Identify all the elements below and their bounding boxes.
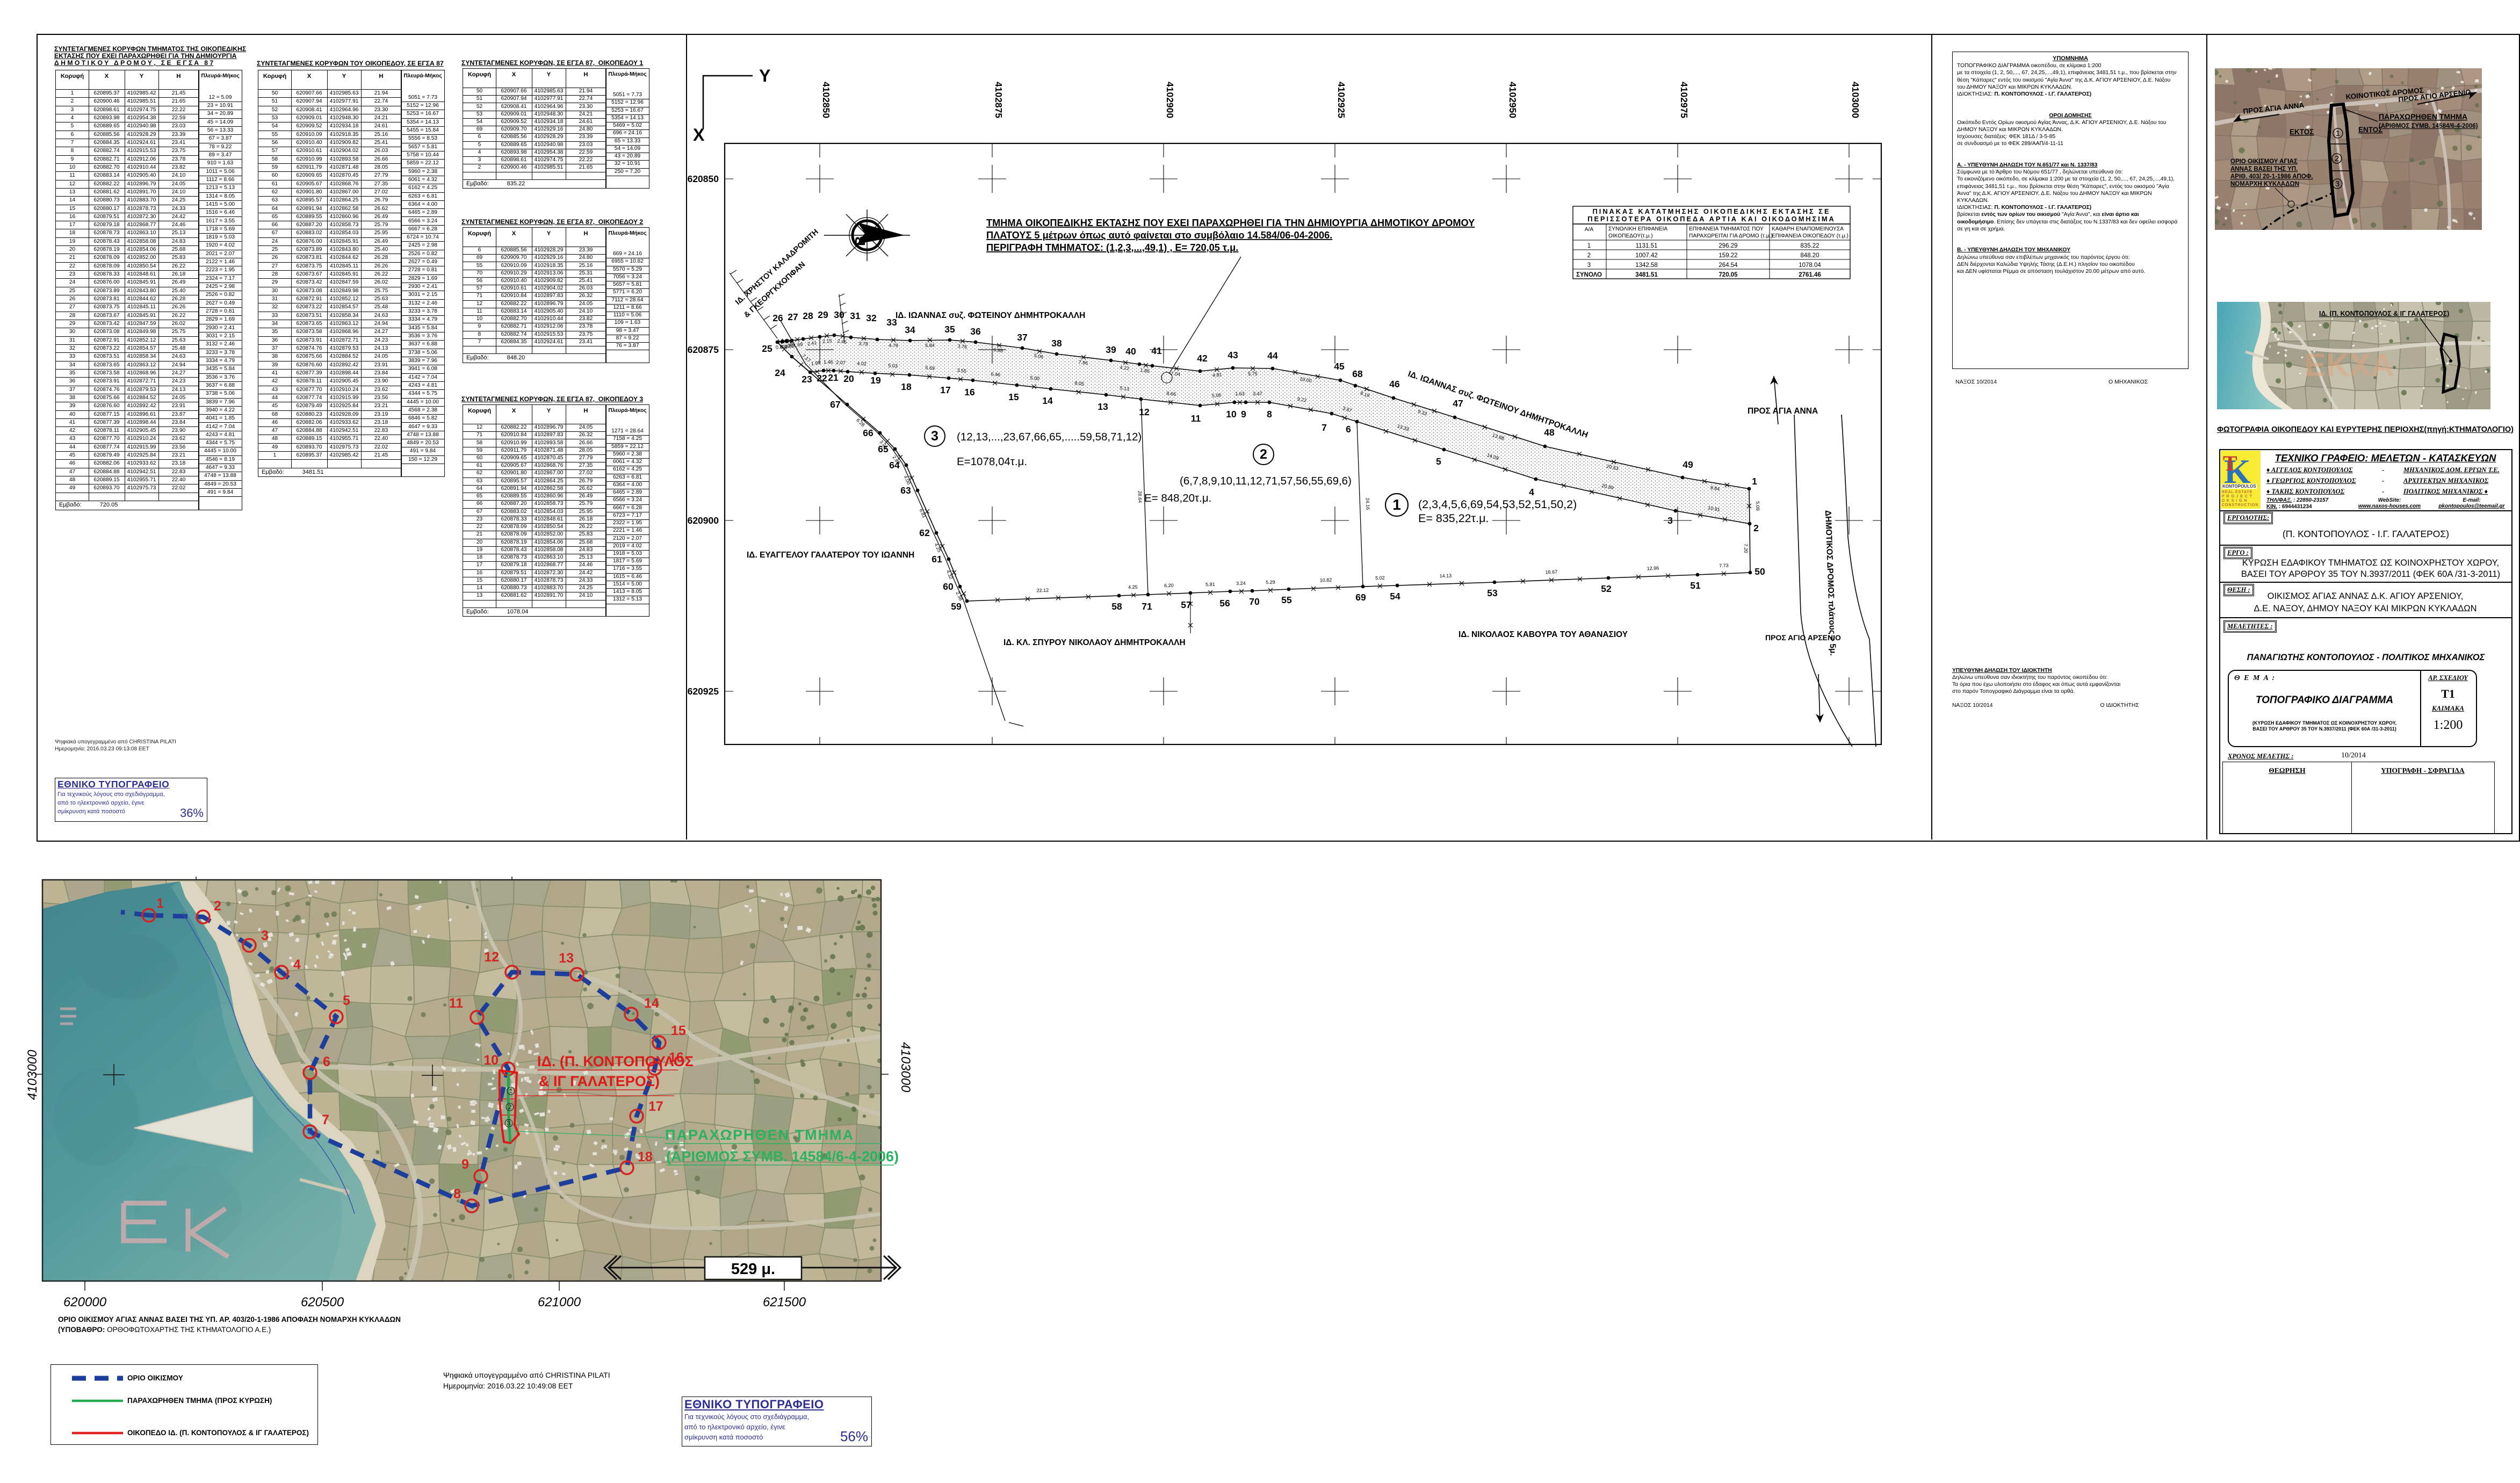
svg-text:69: 69 (1355, 592, 1366, 603)
svg-text:5.29: 5.29 (1266, 580, 1275, 585)
svg-text:4103000: 4103000 (1850, 82, 1861, 118)
svg-text:6: 6 (1346, 424, 1351, 435)
svg-text:3.78: 3.78 (858, 341, 868, 346)
svg-text:10: 10 (483, 1053, 499, 1068)
svg-text:4.25: 4.25 (933, 542, 942, 553)
svg-text:39: 39 (1106, 344, 1116, 355)
svg-text:1: 1 (156, 896, 164, 911)
svg-text:28.64: 28.64 (1137, 490, 1143, 503)
svg-text:3: 3 (931, 429, 938, 444)
svg-text:E=1078,04τ.μ.: E=1078,04τ.μ. (957, 455, 1027, 468)
svg-text:34: 34 (905, 324, 915, 335)
svg-text:5.13: 5.13 (1120, 385, 1130, 392)
svg-text:6.46: 6.46 (991, 371, 1000, 378)
svg-text:ΠΕΡΙΓΡΑΦΗ ΤΜΗΜΑΤΟΣ: (1,2,3,...: ΠΕΡΙΓΡΑΦΗ ΤΜΗΜΑΤΟΣ: (1,2,3,...,49,1) , Ε… (986, 242, 1238, 253)
svg-text:ΚΑΘΑΡΗ ΕΝΑΠΟΜΕΙΝΟΥΣΑ: ΚΑΘΑΡΗ ΕΝΑΠΟΜΕΙΝΟΥΣΑ (1772, 226, 1844, 232)
svg-text:3: 3 (507, 1119, 511, 1127)
svg-text:4102975: 4102975 (1679, 82, 1689, 118)
svg-text:E= 835,22τ.μ.: E= 835,22τ.μ. (1418, 512, 1489, 525)
svg-text:ΠΙΝΑΚΑΣ ΚΑΤΑΤΜΗΣΗΣ ΟΙΚΟΠΕΔΙΚΗΣ: ΠΙΝΑΚΑΣ ΚΑΤΑΤΜΗΣΗΣ ΟΙΚΟΠΕΔΙΚΗΣ ΕΚΤΑΣΗΣ Σ… (1593, 207, 1831, 215)
svg-text:68: 68 (1352, 368, 1363, 379)
svg-text:7: 7 (1322, 422, 1327, 433)
svg-text:65: 65 (878, 444, 889, 454)
svg-text:25: 25 (762, 343, 772, 354)
svg-text:1.63: 1.63 (1235, 391, 1245, 396)
svg-text:ΙΔ. (Π. ΚΟΝΤΟΠΟΥΛΟΣ & ΙΓ ΓΑΛΑΤ: ΙΔ. (Π. ΚΟΝΤΟΠΟΥΛΟΣ & ΙΓ ΓΑΛΑΤΕΡΟΣ) (2319, 310, 2449, 317)
svg-text:296.29: 296.29 (1718, 243, 1737, 249)
svg-text:63: 63 (900, 485, 911, 496)
svg-text:46: 46 (1389, 379, 1400, 389)
svg-text:3: 3 (2335, 179, 2340, 189)
svg-text:529 μ.: 529 μ. (731, 1261, 775, 1278)
svg-text:29: 29 (818, 309, 828, 320)
svg-text:ΕΝΤΟΣ: ΕΝΤΟΣ (2358, 126, 2382, 134)
svg-text:3481.51: 3481.51 (1635, 272, 1658, 278)
svg-text:49: 49 (1683, 459, 1693, 470)
svg-text:60: 60 (943, 581, 954, 592)
svg-text:56: 56 (1219, 598, 1230, 609)
svg-text:620875: 620875 (688, 344, 719, 355)
svg-text:10: 10 (1226, 409, 1237, 419)
svg-text:59: 59 (951, 601, 962, 612)
svg-text:E= 848,20τ.μ.: E= 848,20τ.μ. (1144, 492, 1211, 504)
svg-text:620000: 620000 (63, 1295, 107, 1310)
svg-text:16: 16 (964, 387, 975, 397)
svg-text:Α/Α: Α/Α (1585, 227, 1594, 233)
svg-text:ΠΛΑΤΟΥΣ 5 μέτρων όπως αυτό φαί: ΠΛΑΤΟΥΣ 5 μέτρων όπως αυτό φαίνεται στο … (986, 230, 1332, 241)
svg-text:21: 21 (828, 372, 839, 383)
svg-text:4.81: 4.81 (1212, 372, 1222, 378)
svg-text:70: 70 (1249, 596, 1260, 607)
svg-text:55: 55 (1281, 595, 1292, 605)
svg-text:14: 14 (644, 996, 659, 1011)
svg-text:2: 2 (1753, 523, 1759, 533)
svg-text:3.55: 3.55 (957, 367, 966, 373)
svg-text:57: 57 (1181, 599, 1191, 610)
svg-text:3.24: 3.24 (1236, 581, 1246, 587)
svg-text:1131.51: 1131.51 (1636, 243, 1658, 249)
svg-text:58: 58 (1111, 601, 1122, 612)
svg-text:3: 3 (1587, 262, 1591, 269)
svg-text:5: 5 (343, 993, 350, 1008)
svg-text:5.06: 5.06 (1212, 392, 1222, 398)
svg-text:71: 71 (1142, 601, 1152, 612)
svg-text:ΕΚΧΑ: ΕΚΧΑ (2305, 347, 2394, 383)
svg-text:2761.46: 2761.46 (1799, 272, 1821, 278)
svg-text:ΟΡΙΟ ΟΙΚΙΣΜΟΥ ΑΓΙΑΣ: ΟΡΙΟ ΟΙΚΙΣΜΟΥ ΑΓΙΑΣ (2230, 158, 2298, 165)
svg-text:5.84: 5.84 (925, 343, 935, 348)
svg-text:5.02: 5.02 (1375, 575, 1385, 581)
svg-text:45: 45 (1334, 361, 1345, 372)
svg-text:4102900: 4102900 (1165, 82, 1175, 118)
svg-text:53: 53 (1487, 588, 1498, 598)
svg-text:12: 12 (484, 950, 499, 965)
svg-text:22.12: 22.12 (1036, 588, 1049, 594)
svg-text:5.00: 5.00 (1030, 375, 1039, 381)
svg-text:44: 44 (1267, 350, 1278, 361)
svg-text:42: 42 (1197, 353, 1208, 364)
svg-text:14: 14 (1042, 395, 1053, 406)
svg-text:5: 5 (1436, 456, 1441, 467)
svg-text:8: 8 (1267, 409, 1272, 419)
svg-text:835.22: 835.22 (1800, 243, 1819, 249)
svg-text:5.69: 5.69 (925, 365, 935, 371)
svg-text:48: 48 (1544, 427, 1555, 438)
svg-text:50: 50 (1754, 566, 1765, 577)
svg-text:1: 1 (1392, 496, 1401, 513)
svg-text:ΙΔ. (Π. ΚΟΝΤΟΠΟΥΛΟΣ: ΙΔ. (Π. ΚΟΝΤΟΠΟΥΛΟΣ (537, 1053, 694, 1069)
svg-text:1: 1 (1752, 476, 1757, 487)
svg-text:(6,7,8,9,10,11,12,71,57,56,55,: (6,7,8,9,10,11,12,71,57,56,55,69,6) (1180, 475, 1352, 487)
svg-text:5.75: 5.75 (1248, 371, 1258, 377)
svg-text:26: 26 (772, 313, 783, 323)
svg-text:ΠΑΡΑΧΩΡΗΘΕΝ ΤΜΗΜΑ: ΠΑΡΑΧΩΡΗΘΕΝ ΤΜΗΜΑ (2379, 112, 2467, 121)
svg-text:ΠΑΡΑΧΩΡΕΙΤΑΙ ΓΙΑ ΔΡΟΜΟ (τ.μ.): ΠΑΡΑΧΩΡΕΙΤΑΙ ΓΙΑ ΔΡΟΜΟ (τ.μ.) (1689, 233, 1773, 239)
svg-text:4: 4 (1529, 487, 1534, 497)
svg-text:67: 67 (830, 399, 840, 410)
svg-text:17: 17 (940, 385, 950, 395)
svg-text:43: 43 (1227, 350, 1238, 360)
svg-text:6.88: 6.88 (993, 347, 1003, 353)
svg-text:1.85: 1.85 (1140, 367, 1150, 374)
svg-text:8: 8 (453, 1187, 461, 1202)
svg-text:620850: 620850 (688, 173, 719, 184)
svg-text:18: 18 (901, 381, 912, 392)
svg-text:4102875: 4102875 (993, 82, 1004, 118)
svg-text:41: 41 (1151, 345, 1162, 356)
svg-text:13: 13 (559, 951, 574, 966)
svg-text:11: 11 (449, 996, 464, 1011)
svg-text:ΑΝΝΑΣ ΒΑΣΕΙ ΤΗΣ ΥΠ.: ΑΝΝΑΣ ΒΑΣΕΙ ΤΗΣ ΥΠ. (2230, 166, 2298, 172)
svg-text:& ΙΓ ΓΑΛΑΤΕΡΟΣ): & ΙΓ ΓΑΛΑΤΕΡΟΣ) (539, 1073, 660, 1089)
svg-text:4: 4 (293, 957, 301, 972)
svg-text:ΙΔ. ΙΩΑΝΝΑΣ συζ. ΦΩΤΕΙΝΟΥ ΔΗΜ: ΙΔ. ΙΩΑΝΝΑΣ συζ. ΦΩΤΕΙΝΟΥ ΔΗΜΗΤΡΟΚΑΛΛΗ (896, 311, 1085, 320)
svg-text:2: 2 (1587, 252, 1591, 259)
svg-text:7.04: 7.04 (1171, 371, 1180, 377)
svg-text:4.22: 4.22 (1120, 365, 1130, 371)
svg-text:2.46: 2.46 (837, 338, 847, 345)
svg-text:6: 6 (323, 1054, 330, 1069)
svg-text:720.05: 720.05 (1718, 272, 1738, 278)
svg-text:620500: 620500 (301, 1295, 344, 1310)
svg-text:38: 38 (1051, 338, 1062, 349)
svg-text:ΙΔ. ΚΛ. ΣΠΥΡΟΥ ΝΙΚΟΛΑΟΥ ΔΗΜΗΤΡ: ΙΔ. ΚΛ. ΣΠΥΡΟΥ ΝΙΚΟΛΑΟΥ ΔΗΜΗΤΡΟΚΑΛΛΗ (1003, 638, 1186, 647)
svg-text:2: 2 (508, 1103, 512, 1111)
svg-text:4.02: 4.02 (857, 361, 867, 367)
svg-text:12.96: 12.96 (1647, 566, 1659, 572)
svg-text:ΝΟΜΑΡΧΗ ΚΥΚΛΑΔΩΝ: ΝΟΜΑΡΧΗ ΚΥΚΛΑΔΩΝ (2230, 181, 2299, 187)
svg-text:4103000: 4103000 (898, 1042, 913, 1093)
svg-text:19: 19 (870, 375, 881, 386)
svg-text:1342.58: 1342.58 (1635, 262, 1658, 269)
svg-text:15: 15 (671, 1023, 686, 1038)
svg-text:ΠΑΡΑΧΩΡΗΘΕΝ ΤΜΗΜΑ: ΠΑΡΑΧΩΡΗΘΕΝ ΤΜΗΜΑ (665, 1127, 854, 1143)
svg-text:12: 12 (1139, 407, 1150, 417)
svg-text:2: 2 (2335, 154, 2339, 163)
svg-text:15: 15 (1008, 392, 1019, 402)
svg-text:24: 24 (775, 367, 785, 378)
svg-text:4.25: 4.25 (1128, 584, 1138, 590)
svg-text:ΕΠΙΦΑΝΕΙΑ ΤΜΗΜΑΤΟΣ ΠΟΥ: ΕΠΙΦΑΝΕΙΑ ΤΜΗΜΑΤΟΣ ΠΟΥ (1689, 226, 1764, 232)
svg-text:3: 3 (261, 928, 269, 943)
svg-text:ΤΜΗΜΑ ΟΙΚΟΠΕΔΙΚΗΣ ΕΚΤΑΣΗΣ ΠΟΥ: ΤΜΗΜΑ ΟΙΚΟΠΕΔΙΚΗΣ ΕΚΤΑΣΗΣ ΠΟΥ ΕΧΕΙ ΠΑΡΑΧ… (986, 218, 1475, 228)
svg-text:848.20: 848.20 (1800, 252, 1819, 259)
svg-text:30: 30 (834, 309, 844, 320)
svg-text:ΠΕΡΙΣΣΟΤΕΡΑ ΟΙΚΟΠΕΔΑ ΑΡΤΙΑ ΚΑΙ: ΠΕΡΙΣΣΟΤΕΡΑ ΟΙΚΟΠΕΔΑ ΑΡΤΙΑ ΚΑΙ ΟΙΚΟΔΟΜΗΣ… (1587, 215, 1836, 223)
svg-text:2.07: 2.07 (836, 360, 846, 366)
svg-text:Y: Y (759, 66, 770, 85)
svg-text:1007.42: 1007.42 (1635, 252, 1658, 259)
svg-text:17: 17 (648, 1099, 663, 1114)
svg-text:20: 20 (843, 373, 854, 384)
svg-text:X: X (693, 125, 705, 144)
svg-text:66: 66 (863, 428, 873, 438)
svg-text:4102850: 4102850 (821, 82, 832, 118)
svg-text:(2,3,4,5,6,69,54,53,52,51,50,2: (2,3,4,5,6,69,54,53,52,51,50,2) (1418, 498, 1577, 511)
svg-text:62: 62 (919, 527, 930, 538)
svg-text:14.13: 14.13 (1439, 573, 1452, 579)
svg-text:ΣΥΝΟΛΟ: ΣΥΝΟΛΟ (1576, 272, 1602, 278)
svg-text:ΙΔ. ΝΙΚΟΛΑΟΣ ΚΑΒΟΥΡΑ ΤΟΥ ΑΘΑΝΑ: ΙΔ. ΝΙΚΟΛΑΟΣ ΚΑΒΟΥΡΑ ΤΟΥ ΑΘΑΝΑΣΙΟΥ (1458, 630, 1628, 639)
svg-text:9: 9 (1241, 409, 1246, 419)
svg-text:ΟΙΚΟΠΕΔΟΥ(τ.μ.): ΟΙΚΟΠΕΔΟΥ(τ.μ.) (1608, 233, 1653, 239)
svg-text:7.20: 7.20 (1743, 544, 1749, 553)
svg-text:1: 1 (2336, 129, 2340, 138)
svg-text:4.79: 4.79 (889, 343, 898, 349)
svg-text:6.20: 6.20 (1164, 583, 1174, 589)
svg-text:B: B (852, 236, 868, 246)
svg-text:10.82: 10.82 (1319, 577, 1332, 583)
svg-text:3: 3 (1667, 515, 1673, 526)
svg-text:159.22: 159.22 (1718, 252, 1737, 259)
svg-text:4102925: 4102925 (1336, 82, 1347, 118)
svg-text:1.95: 1.95 (811, 360, 821, 366)
svg-text:7: 7 (322, 1112, 329, 1127)
svg-text:31: 31 (850, 310, 861, 321)
svg-text:51: 51 (1690, 580, 1701, 591)
svg-text:7.96: 7.96 (1078, 359, 1088, 366)
svg-text:620925: 620925 (688, 686, 719, 697)
svg-text:24.16: 24.16 (1365, 497, 1371, 510)
svg-text:47: 47 (1453, 398, 1463, 409)
svg-text:ΙΔ. ΧΡΗΣΤΟΥ ΚΑΛΑΔΡΟΜΙΤΗ: ΙΔ. ΧΡΗΣΤΟΥ ΚΑΛΑΔΡΟΜΙΤΗ (734, 228, 820, 307)
svg-text:3.47: 3.47 (1253, 391, 1262, 396)
svg-text:64: 64 (889, 460, 900, 471)
svg-text:621000: 621000 (538, 1295, 581, 1310)
svg-text:9: 9 (461, 1157, 469, 1172)
svg-text:620900: 620900 (688, 515, 719, 526)
svg-text:(ΑΡΙΘΜΟΣ ΣΥΜΒ. 14584/6-4-2006): (ΑΡΙΘΜΟΣ ΣΥΜΒ. 14584/6-4-2006) (666, 1148, 899, 1164)
svg-text:ΣΥΝΟΛΙΚΗ ΕΠΙΦΑΝΕΙΑ: ΣΥΝΟΛΙΚΗ ΕΠΙΦΑΝΕΙΑ (1608, 226, 1667, 232)
svg-text:27: 27 (788, 312, 798, 322)
svg-text:ΕΠΙΦΑΝΕΙΑ ΟΙΚΟΠΕΔΟΥ (τ.μ.): ΕΠΙΦΑΝΕΙΑ ΟΙΚΟΠΕΔΟΥ (τ.μ.) (1772, 233, 1849, 239)
svg-text:5.03: 5.03 (888, 363, 898, 369)
svg-text:18: 18 (638, 1149, 653, 1164)
svg-text:11: 11 (1191, 413, 1201, 424)
svg-text:(ΑΡΙΘΜΟΣ ΣΥΜΒ. 14584/6-4-2006): (ΑΡΙΘΜΟΣ ΣΥΜΒ. 14584/6-4-2006) (2379, 123, 2478, 129)
svg-text:1078.04: 1078.04 (1799, 262, 1821, 269)
svg-text:52: 52 (1601, 583, 1612, 594)
svg-text:ΠΡΟΣ ΑΓΙΑ ΑΝΝΑ: ΠΡΟΣ ΑΓΙΑ ΑΝΝΑ (1748, 407, 1818, 416)
svg-text:3.76: 3.76 (957, 343, 967, 349)
svg-text:36: 36 (970, 326, 981, 337)
svg-text:40: 40 (1125, 346, 1136, 357)
svg-text:2.15: 2.15 (822, 338, 832, 344)
svg-text:22: 22 (817, 373, 827, 384)
svg-text:1.46: 1.46 (824, 359, 833, 365)
svg-text:61: 61 (932, 554, 942, 565)
svg-text:35: 35 (944, 324, 955, 335)
svg-text:2: 2 (214, 899, 221, 914)
svg-text:5.09: 5.09 (1755, 501, 1760, 511)
svg-text:7.73: 7.73 (1719, 563, 1729, 569)
svg-text:28: 28 (803, 310, 813, 321)
svg-text:(12,13,...,23,67,66,65,.....59: (12,13,...,23,67,66,65,.....59,58,71,12) (957, 431, 1142, 443)
svg-text:4103000: 4103000 (25, 1050, 40, 1100)
svg-text:621500: 621500 (763, 1295, 806, 1310)
svg-text:8.66: 8.66 (1166, 390, 1176, 397)
svg-text:1: 1 (509, 1087, 513, 1095)
svg-text:13: 13 (1097, 401, 1108, 412)
svg-text:ΑΡΙΘ. 403/ 20-1-1986 ΑΠΟΦ.: ΑΡΙΘ. 403/ 20-1-1986 ΑΠΟΦ. (2230, 173, 2313, 180)
svg-text:1: 1 (1587, 243, 1591, 249)
svg-text:264.54: 264.54 (1718, 262, 1738, 269)
svg-text:37: 37 (1017, 332, 1027, 343)
svg-text:ΙΔ. ΕΥΑΓΓΕΛΟΥ ΓΑΛΑΤΕΡΟΥ ΤΟΥ Ι: ΙΔ. ΕΥΑΓΓΕΛΟΥ ΓΑΛΑΤΕΡΟΥ ΤΟΥ ΙΩΑΝΝΗ (747, 551, 914, 560)
svg-text:5.81: 5.81 (1205, 582, 1215, 588)
svg-text:23: 23 (802, 374, 812, 385)
svg-text:ΕΚΤΟΣ: ΕΚΤΟΣ (2290, 128, 2314, 136)
svg-text:54: 54 (1390, 591, 1400, 602)
svg-text:32: 32 (866, 313, 877, 323)
svg-text:16.67: 16.67 (1545, 569, 1557, 575)
svg-text:8.05: 8.05 (1074, 380, 1084, 387)
svg-text:4102950: 4102950 (1507, 82, 1518, 118)
svg-text:2: 2 (1260, 447, 1267, 462)
